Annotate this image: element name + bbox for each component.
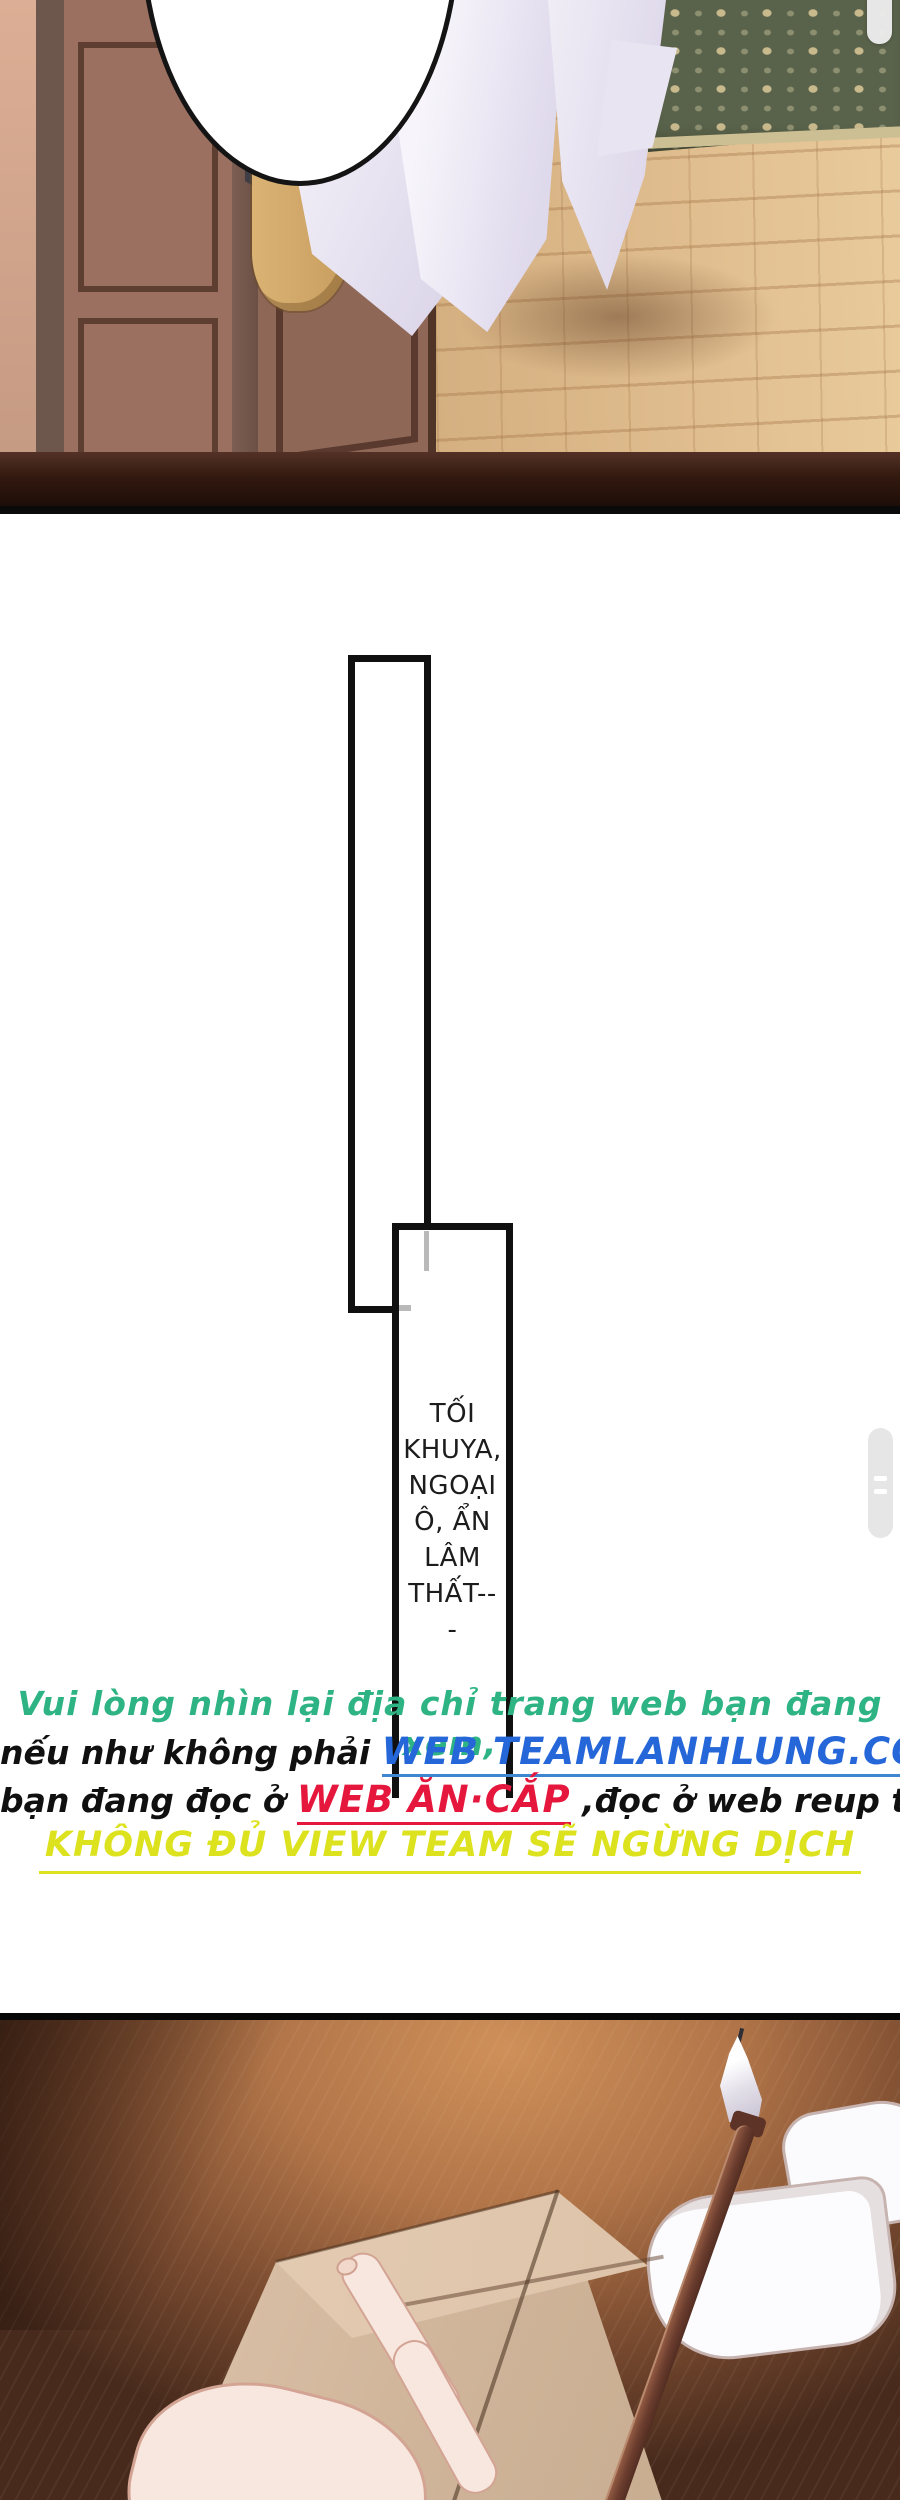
grip-dash-icon xyxy=(874,1476,887,1481)
warning-line-4: KHÔNG ĐỦ VIEW TEAM SẼ NGỪNG DỊCH xyxy=(0,1823,900,1874)
bubble-tail-horizontal xyxy=(399,1305,411,1311)
scrollbar-handle-top-icon[interactable] xyxy=(867,0,892,44)
scrollbar-handle-icon[interactable] xyxy=(868,1428,893,1538)
warning-line-3-suffix: ,đọc ở web reup truyện xyxy=(571,1781,900,1820)
grip-dash-icon xyxy=(874,1489,887,1494)
bubble-line: KHUYA, xyxy=(392,1432,513,1468)
stolen-web-label: WEB ĂN·CẮP xyxy=(297,1778,571,1825)
bubble-line: NGOẠI xyxy=(392,1468,513,1504)
door-inset-panel xyxy=(78,318,218,462)
warning-line-4-text: KHÔNG ĐỦ VIEW TEAM SẼ NGỪNG DỊCH xyxy=(39,1823,861,1874)
bubble-line: THẤT-- xyxy=(392,1576,513,1612)
panel-bottom-shadow-strip xyxy=(0,452,900,508)
wardrobe-edge-light xyxy=(0,0,36,472)
bubble-tail-vertical xyxy=(424,1231,429,1271)
speech-bubble-text: TỐI KHUYA, NGOẠI Ô, ẨN LÂM THẤT-- - xyxy=(392,1396,513,1648)
bubble-line: TỐI xyxy=(392,1396,513,1432)
comic-panel-bottom xyxy=(0,2013,900,2500)
speech-bubble-rectangle-empty xyxy=(348,655,431,1313)
bubble-line: LÂM xyxy=(392,1540,513,1576)
panel-border-line xyxy=(0,506,900,514)
comic-panel-top xyxy=(0,0,900,514)
warning-line-3: bạn đang đọc ở WEB ĂN·CẮP ,đọc ở web reu… xyxy=(0,1777,900,1824)
official-site-link: WEB TEAMLANHLUNG.COM xyxy=(382,1730,900,1773)
comic-reader-page: TỐI KHUYA, NGOẠI Ô, ẨN LÂM THẤT-- - Vui … xyxy=(0,0,900,2500)
bubble-line: Ô, ẨN xyxy=(392,1504,513,1540)
wardrobe-edge-dark xyxy=(36,0,64,472)
warning-line-2: nếu như không phải WEB TEAMLANHLUNG.COM … xyxy=(0,1729,900,1776)
warning-line-3-prefix: bạn đang đọc ở xyxy=(0,1781,297,1820)
bubble-line: - xyxy=(392,1612,513,1648)
warning-line-2-prefix: nếu như không phải xyxy=(0,1733,382,1772)
